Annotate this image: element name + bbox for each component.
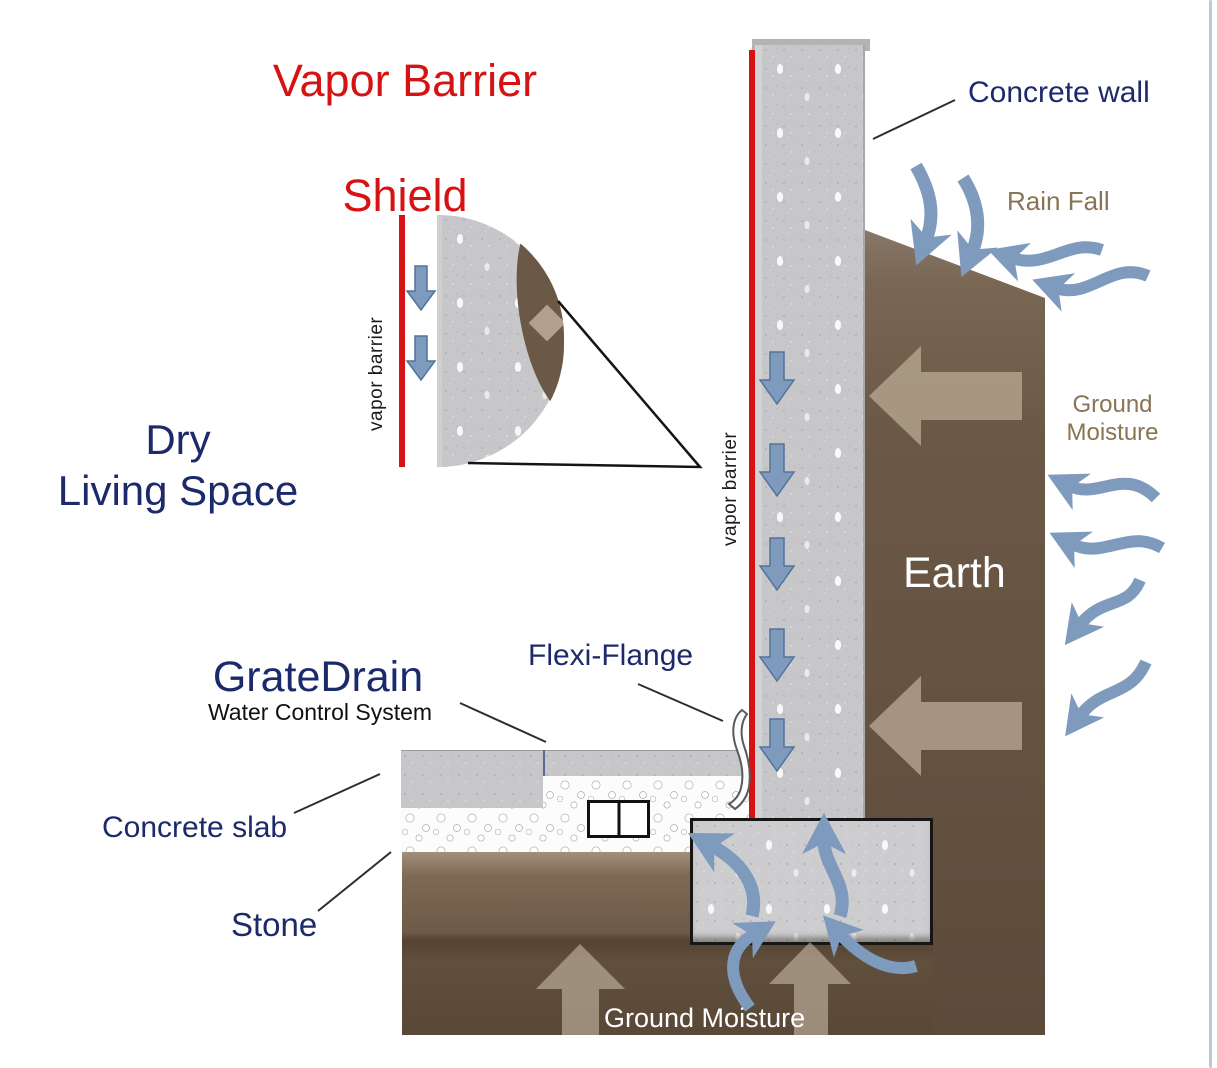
dry-living-space-label: Dry Living Space: [18, 414, 338, 516]
vapor-barrier-wall-label: vapor barrier: [720, 426, 742, 546]
concrete-wall: [755, 45, 865, 822]
ground-moisture-side-arrows: [1070, 484, 1162, 716]
gratedrain-pointer: [460, 703, 546, 742]
concrete-wall-pointer: [873, 100, 955, 139]
stone-label: Stone: [231, 906, 317, 944]
detail-vapor-barrier-line: [399, 215, 405, 467]
flexi-flange-pointer: [638, 684, 723, 721]
drain-pipe-divider: [617, 803, 620, 835]
slab-joint-line: [543, 750, 545, 777]
concrete-slab-thick: [401, 750, 543, 809]
rain-fall-label: Rain Fall: [1007, 186, 1110, 217]
footing-block: [690, 818, 933, 945]
title-line2: Shield: [342, 170, 467, 221]
stone-pointer: [318, 852, 391, 911]
diagram-canvas: Vapor Barrier Shield Dry Living Space Co…: [0, 0, 1217, 1068]
vapor-barrier-line: [749, 50, 755, 818]
concrete-slab-pointer: [294, 774, 380, 813]
detail-half-disc: [437, 215, 564, 467]
ground-moisture-bottom-label: Ground Moisture: [604, 1003, 805, 1034]
ground-moisture-side-label: Ground Moisture: [1050, 391, 1175, 448]
concrete-slab-label: Concrete slab: [102, 811, 287, 845]
vapor-barrier-detail-label: vapor barrier: [366, 313, 388, 431]
detail-seepage-arrows: [407, 266, 435, 380]
water-control-system-label: Water Control System: [170, 699, 470, 726]
drain-pipe: [587, 800, 650, 838]
flexi-flange-label: Flexi-Flange: [528, 639, 693, 673]
title-line1: Vapor Barrier: [273, 55, 537, 106]
concrete-wall-label: Concrete wall: [968, 76, 1150, 110]
gratedrain-label: GrateDrain: [168, 653, 468, 702]
frame-border-line: [1209, 0, 1212, 1068]
diagram-title: Vapor Barrier Shield: [235, 52, 575, 225]
earth-label: Earth: [903, 549, 1006, 598]
concrete-slab-thin: [543, 750, 747, 777]
